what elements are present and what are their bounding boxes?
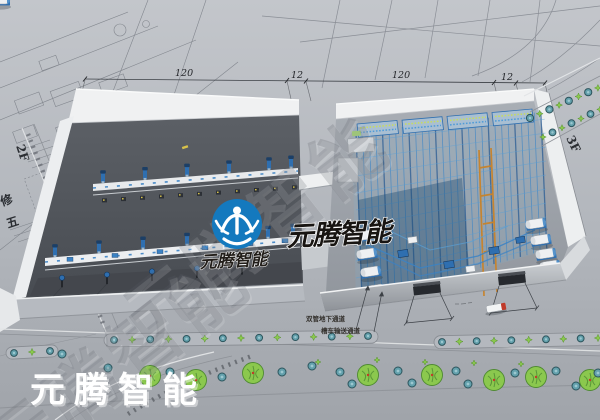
brand-watermark-bottom: 元腾智能 元腾智能 (30, 371, 208, 412)
facility-render: 120 12 120 12 (0, 0, 600, 420)
note-tanker-conveyor: 槽车输送通道 (321, 326, 361, 335)
dim-left-width: 120 (175, 68, 193, 79)
site-render-canvas: 120 12 120 12 (0, 0, 600, 420)
logo-text-small: 元腾智能 (199, 249, 271, 273)
brand-text: 元腾智能 (30, 371, 206, 410)
logo-text-large: 元腾智能 (286, 216, 396, 253)
dim-right-width: 120 (392, 70, 410, 81)
dim-right-margin: 12 (501, 72, 513, 83)
note-underground-passage: 双管地下通道 (306, 314, 346, 323)
dim-gap: 12 (291, 70, 303, 81)
